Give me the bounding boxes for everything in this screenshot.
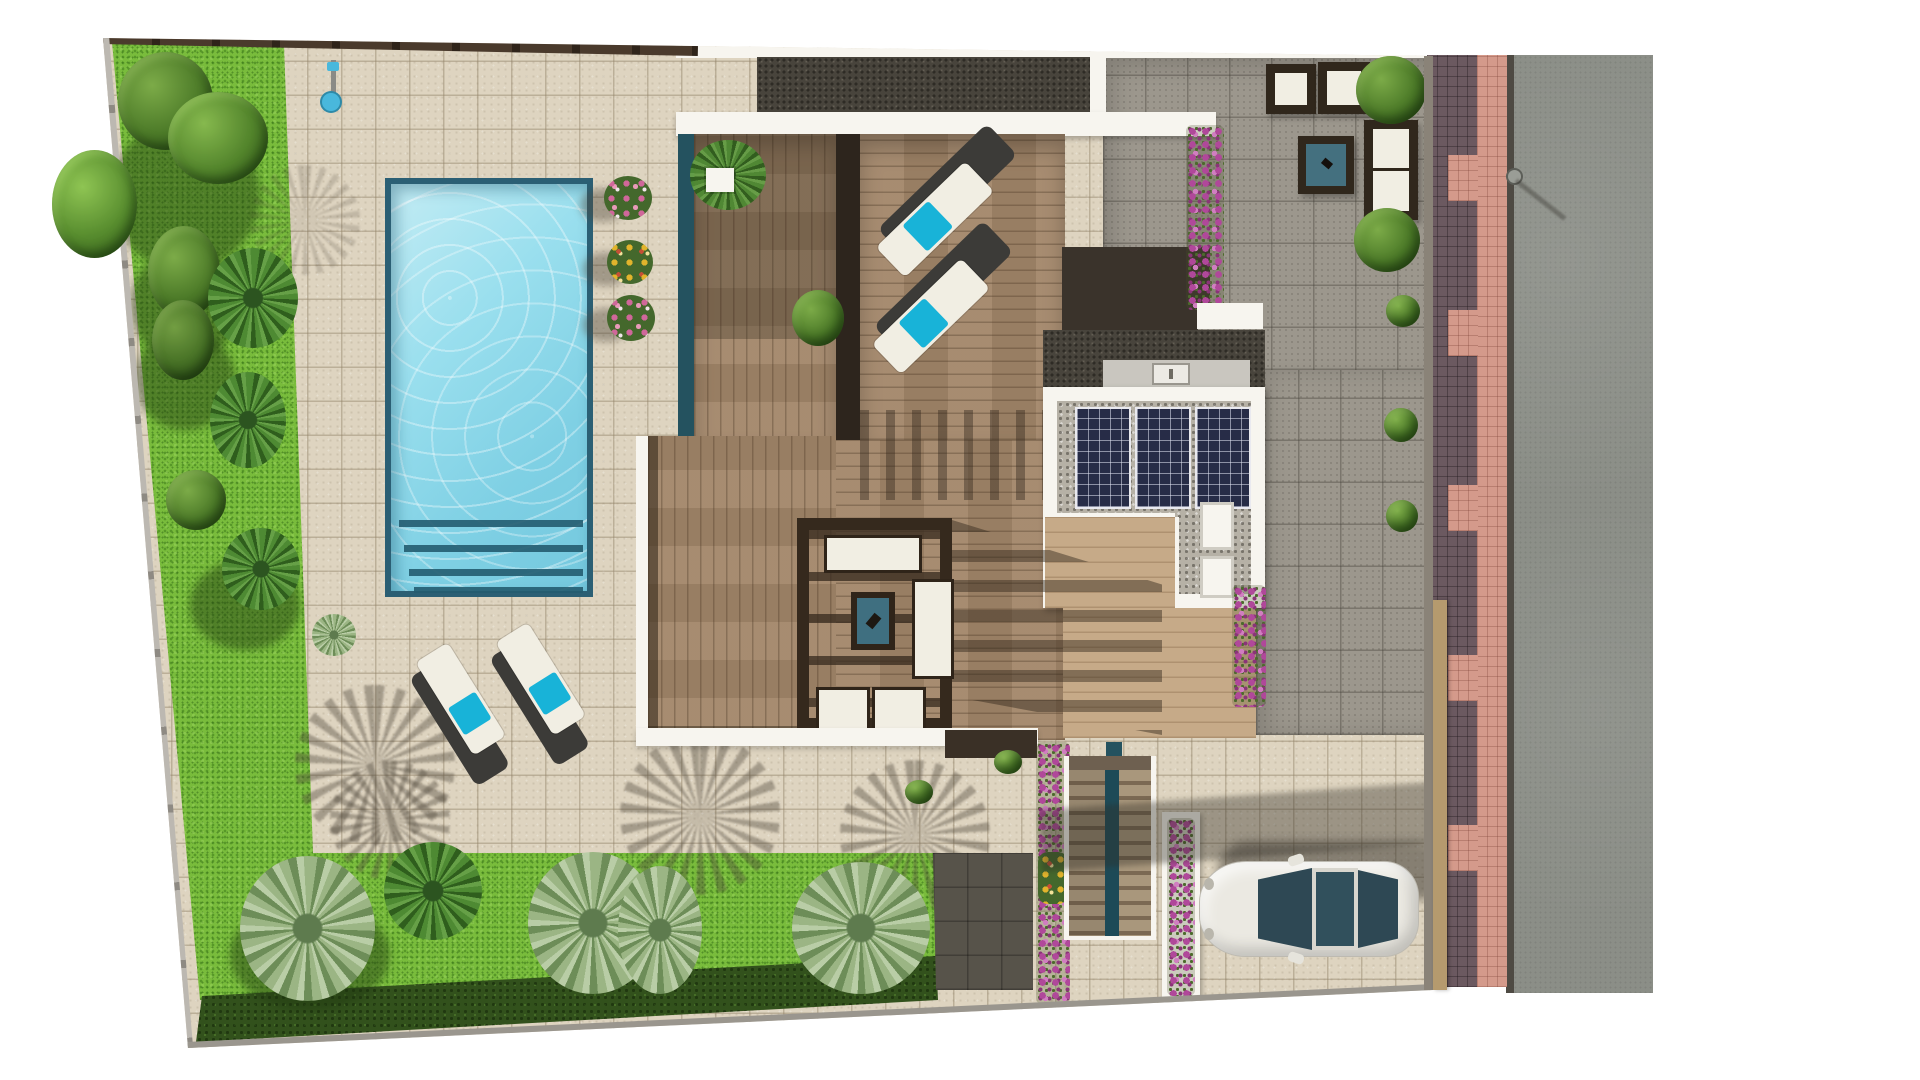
bougainvillea [1232, 585, 1266, 707]
pergola-seat [875, 690, 923, 728]
flower-planter [604, 176, 652, 220]
fan-palm [240, 856, 375, 1001]
sidewalk-pink-notch [1448, 155, 1478, 201]
sidewalk-pink-notch [1448, 825, 1478, 871]
parapet-corner [1197, 303, 1263, 329]
palm-tree [208, 248, 298, 348]
car [1200, 862, 1418, 956]
solar-module [1075, 407, 1131, 509]
car-rear-window [1358, 870, 1398, 948]
pergola [797, 518, 952, 730]
sidewalk-pink-notch [1448, 310, 1478, 356]
railing-shadow [860, 410, 1065, 500]
deck-planter-box [706, 168, 734, 192]
sidewalk-pink-notch [1448, 485, 1478, 531]
parapet-wall [676, 112, 1216, 136]
palm-tree [384, 842, 482, 940]
pergola-coffee-table [851, 592, 895, 650]
pool-step [399, 520, 583, 527]
deck-side-wall [636, 436, 648, 736]
car-headlight [1204, 878, 1214, 890]
car-roof [1312, 868, 1358, 950]
entry-step-platform [945, 730, 1037, 758]
pergola-seat [819, 690, 867, 728]
pool-shower-head [322, 93, 340, 111]
pool-step [409, 569, 583, 576]
roof-edge [676, 44, 1433, 58]
outdoor-armchair [1266, 64, 1316, 114]
sofa-seam [1373, 168, 1409, 171]
overhanging-tree [52, 150, 137, 258]
car-windshield [1258, 868, 1312, 950]
teal-coffee-table [1298, 136, 1354, 194]
solar-module [1135, 407, 1191, 509]
driveway-dark-strip [933, 853, 1033, 990]
pergola-daybed [827, 538, 919, 570]
bougainvillea [1186, 125, 1224, 310]
deck-bush [792, 290, 844, 346]
fan-palm [792, 862, 930, 994]
pool-step [404, 545, 583, 552]
garden-bush [1386, 500, 1418, 532]
car-headlight [1204, 928, 1214, 940]
deck-divider-wall [836, 134, 860, 440]
entrance-wall [1433, 600, 1447, 990]
silver-bush [312, 614, 356, 656]
flower-planter [607, 295, 655, 341]
garden-bush [166, 470, 226, 530]
garden-bush [994, 750, 1022, 774]
ac-unit [1200, 556, 1234, 598]
site-plan-render [0, 0, 1920, 1080]
palm-tree [222, 528, 300, 610]
flower-planter [607, 240, 653, 284]
solar-module [1195, 407, 1251, 509]
garden-bush [1384, 408, 1418, 442]
gravel-roof-band [757, 57, 1103, 113]
sidewalk-pink-strip [1477, 55, 1507, 987]
outdoor-kitchen-counter [1103, 360, 1250, 388]
ac-unit [1200, 502, 1234, 550]
road-curb [1506, 55, 1514, 993]
solar-panels [1075, 407, 1253, 509]
garden-bush [1356, 56, 1426, 124]
swimming-pool [385, 178, 593, 597]
garden-bush [1354, 208, 1420, 272]
garden-bush [152, 300, 214, 380]
sink-faucet-icon [1169, 369, 1173, 379]
right-boundary-wall [1424, 56, 1433, 990]
pool-step [414, 587, 583, 593]
stair-landing [1069, 756, 1151, 770]
palm-tree [210, 372, 286, 468]
outdoor-sofa [1364, 120, 1418, 220]
garden-tree [168, 92, 268, 184]
garden-bush [905, 780, 933, 804]
pergola-lounge-chair [915, 582, 951, 676]
roof-divider-wall [1090, 57, 1106, 113]
sidewalk-pink-notch [1448, 655, 1478, 701]
pool-shower-valve [327, 62, 339, 71]
garden-bush [1386, 295, 1420, 327]
fan-palm [618, 866, 702, 994]
